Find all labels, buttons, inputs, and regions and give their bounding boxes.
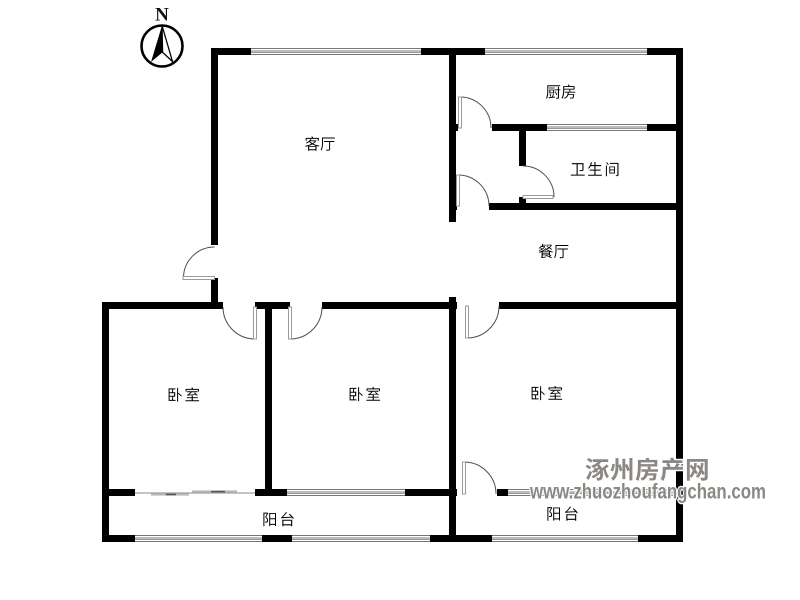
svg-text:N: N <box>155 5 169 26</box>
svg-text:www.zhuozhoufangchan.com: www.zhuozhoufangchan.com <box>529 481 766 504</box>
